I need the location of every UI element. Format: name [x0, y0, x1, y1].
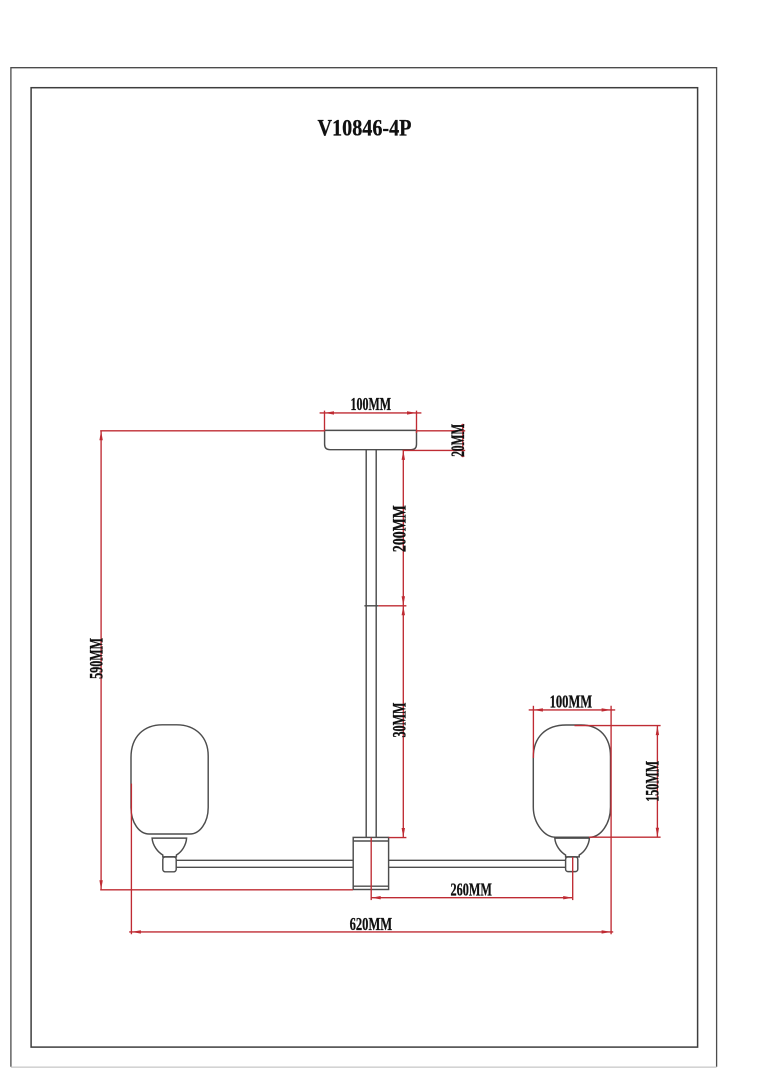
- svg-text:100MM: 100MM: [351, 394, 392, 414]
- svg-text:590MM: 590MM: [87, 638, 108, 679]
- svg-text:V10846-4P: V10846-4P: [318, 115, 412, 141]
- svg-text:100MM: 100MM: [550, 691, 593, 711]
- svg-text:150MM: 150MM: [643, 761, 664, 802]
- svg-text:30MM: 30MM: [389, 702, 410, 737]
- svg-text:260MM: 260MM: [451, 880, 493, 900]
- svg-text:200MM: 200MM: [390, 505, 411, 552]
- svg-text:20MM: 20MM: [448, 424, 469, 457]
- svg-text:620MM: 620MM: [350, 914, 393, 934]
